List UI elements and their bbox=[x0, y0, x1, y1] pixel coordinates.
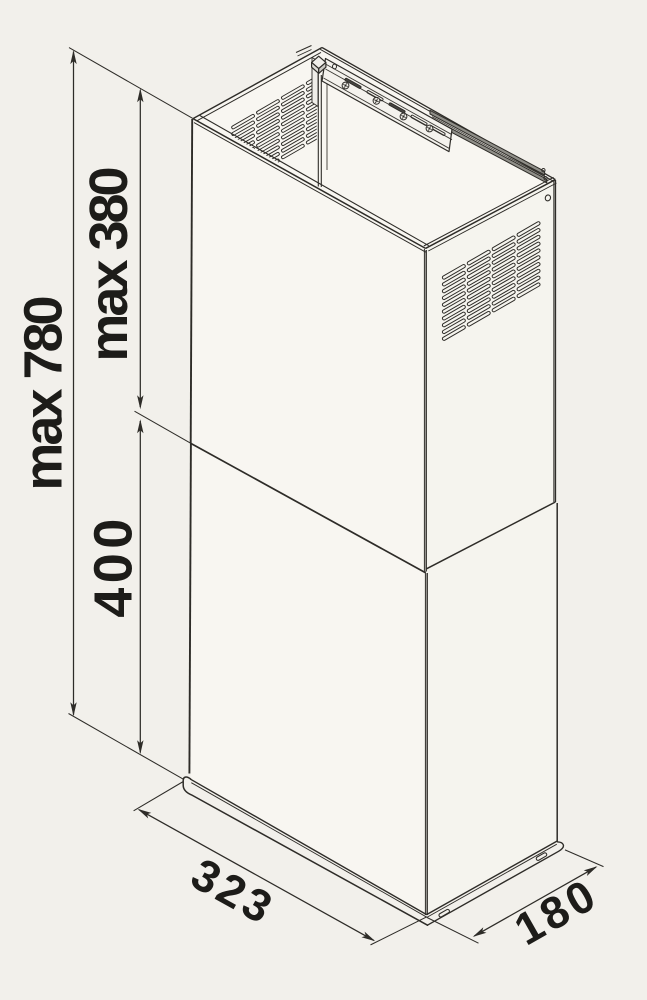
svg-text:400: 400 bbox=[84, 514, 144, 618]
svg-text:max 380: max 380 bbox=[79, 168, 139, 361]
svg-text:max 780: max 780 bbox=[14, 297, 74, 490]
